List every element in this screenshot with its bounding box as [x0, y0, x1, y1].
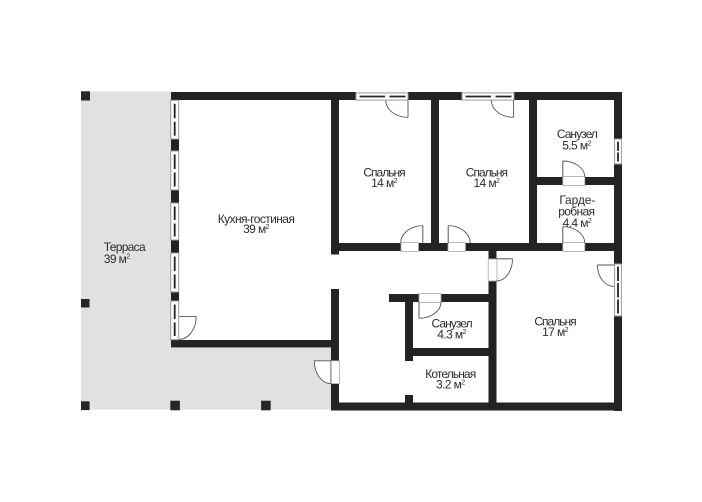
- svg-text:4.3 м2: 4.3 м2: [437, 327, 466, 341]
- svg-text:5.5 м2: 5.5 м2: [562, 139, 591, 153]
- svg-text:3.2 м2: 3.2 м2: [436, 378, 465, 392]
- svg-text:4.4 м2: 4.4 м2: [563, 216, 592, 230]
